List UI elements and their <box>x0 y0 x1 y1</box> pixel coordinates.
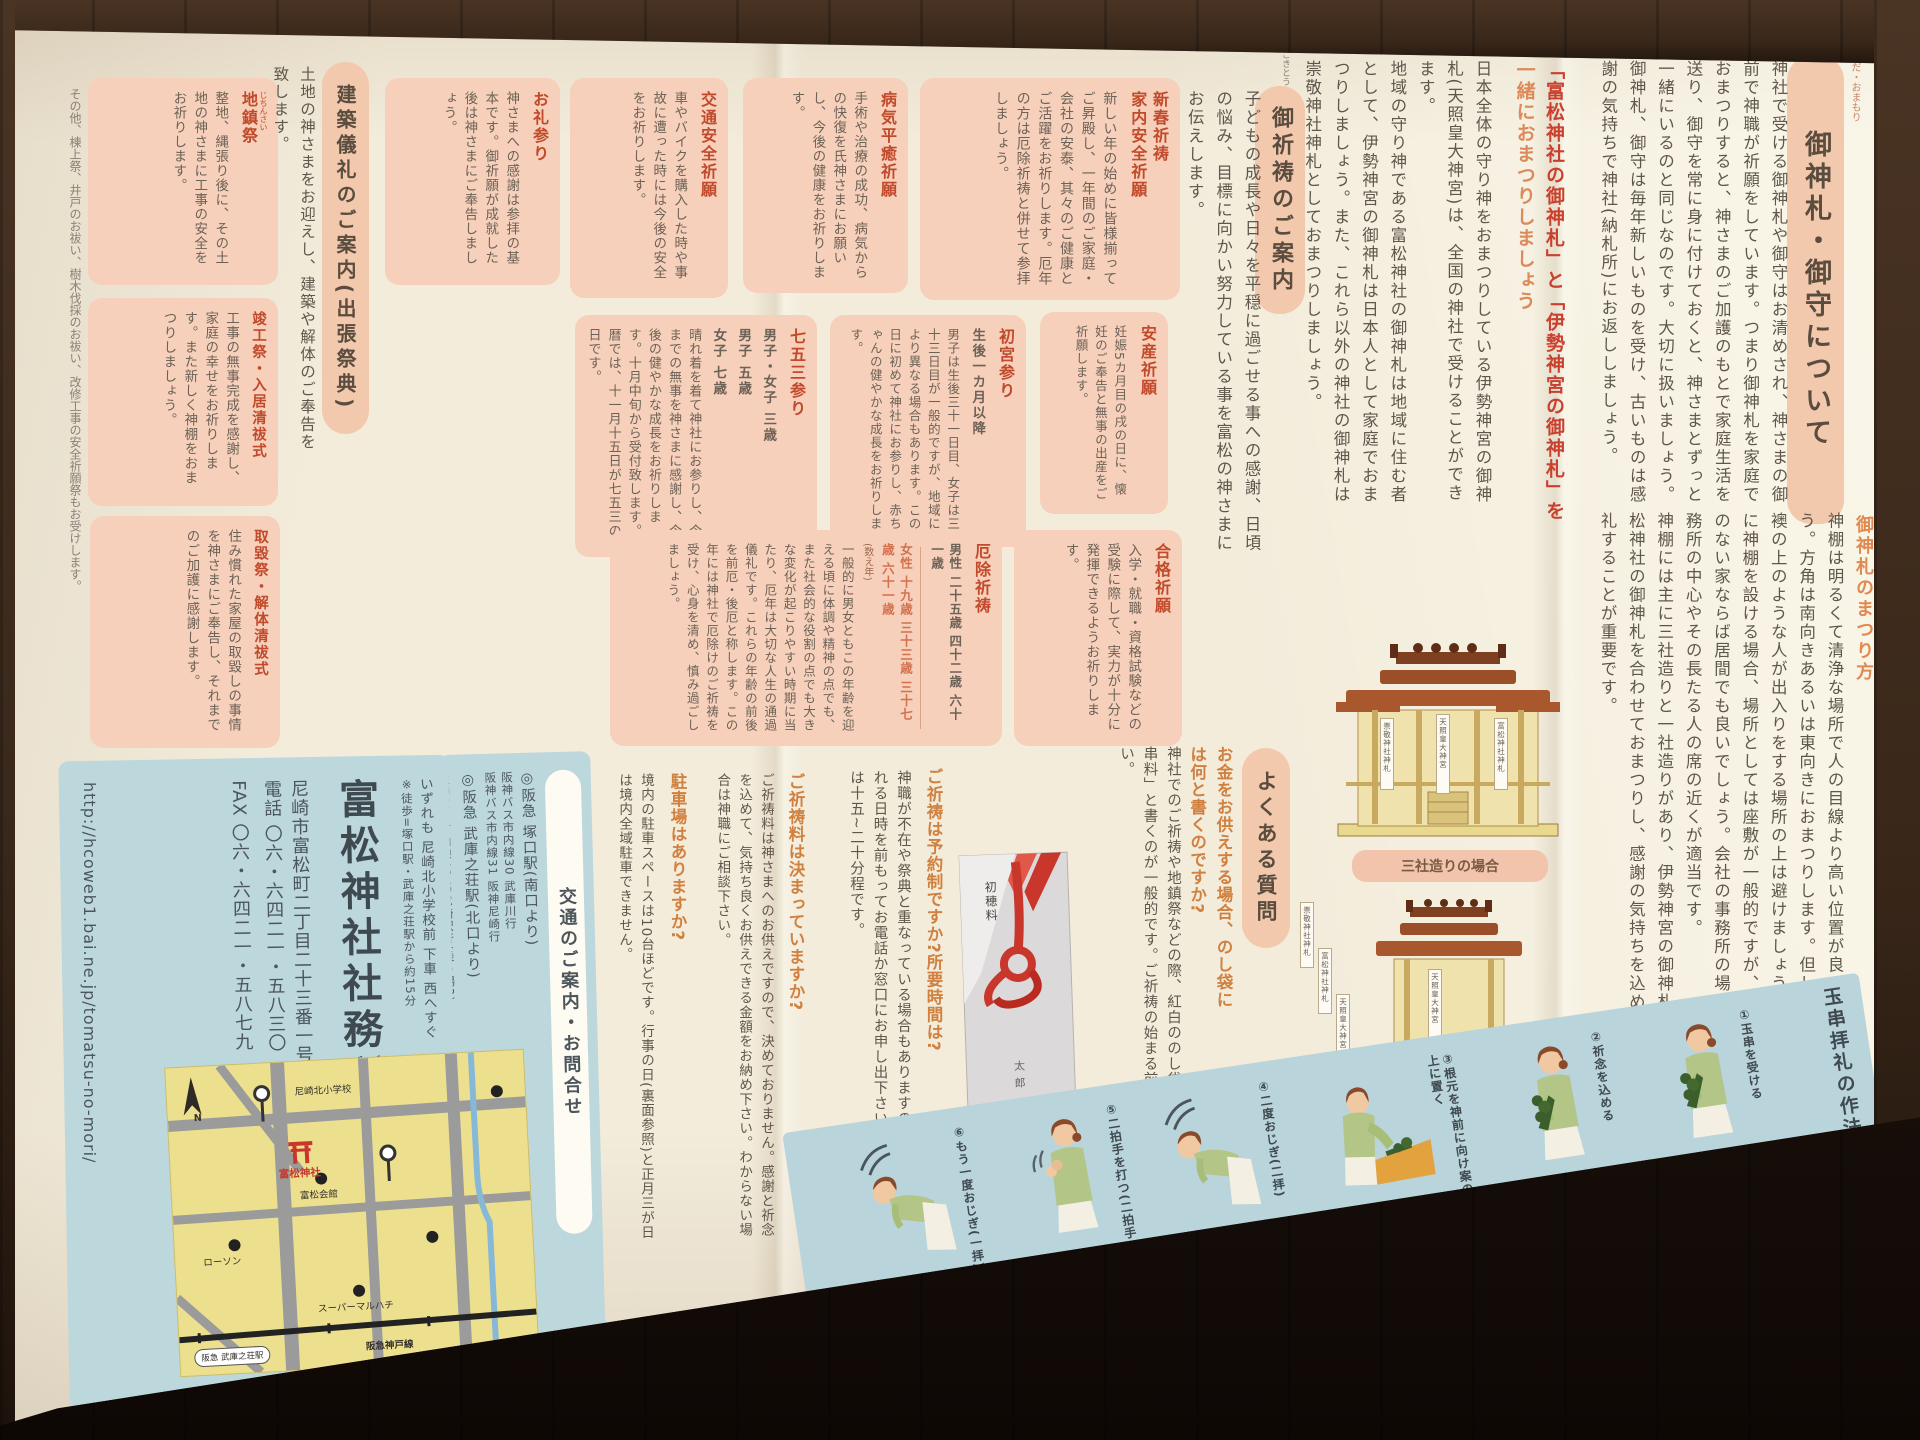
torikowashi-body: 住み慣れた家屋の取毀しの事情を神さまにご奉告し、それまでのご加護に感謝します。 <box>180 529 243 735</box>
shinshun-body: 新しい年の始めに皆様揃ってご昇殿し、一年間のご家庭・会社の安泰、其々のご健康とご… <box>989 91 1119 287</box>
map-art <box>165 1050 539 1376</box>
figure-hold-sprig-icon <box>1652 1009 1752 1148</box>
ofuda-p2: 御神札、御守は毎年新しいものを受け、古いものは感謝の気持ちで神社(納札所)にお返… <box>1593 60 1650 512</box>
matsuri-title: 御神札のまつり方 <box>1850 515 1876 763</box>
map-rail-label: 阪急神戸線 <box>366 1336 414 1352</box>
sanja-altar-illustration: 崇敬神社神札 天照皇大神宮 富松神社神札 <box>1332 632 1564 844</box>
shichigosan-body: 晴れ着を着て神社にお参りし、今までの無事を神さまに感謝し、今後の健やかな成長をお… <box>582 328 703 544</box>
shichigosan-age-1: 男子・女子 三歳 <box>758 328 778 544</box>
torii-icon <box>287 1139 314 1164</box>
shunko-body: 工事の無事完成を感謝し、家庭の幸せをお祈りします。また新しく神棚をおまつりしまし… <box>157 311 241 493</box>
shinshun-title-2: 家内安全祈願 <box>1126 91 1147 287</box>
ofuda-sub1a: 「富松神社の御神札」と「伊勢神宮の御神札」を <box>1539 60 1568 522</box>
kenchiku-side-note: その他、棟上祭、井戸のお祓い、樹木伐採のお祓い、改修工事の安全祈願祭もお受けしま… <box>65 88 84 628</box>
access-map: N 富松神社 ローソン 富松会館 尼崎北小学校 スーパーマルハチ 阪急神戸線 阪… <box>164 1049 540 1377</box>
box-yakuyoke: 厄除祈祷 男性 二十五歳 四十二歳 六十一歳 女性 十九歳 三十三歳 三十七歳 … <box>610 530 1002 746</box>
figure-bow-icon <box>853 1127 967 1268</box>
map-school-label: 尼崎北小学校 <box>294 1081 352 1098</box>
map-hall-label: 富松会館 <box>300 1186 339 1202</box>
box-jichinsai: じちんさい 地鎮祭 整地、縄張り後に、その土地の神さまに工事の安全をお祈りします… <box>88 78 278 285</box>
tamagushi-step-1: ①玉串を受ける <box>1652 1007 1773 1175</box>
figure-place-sprig-icon <box>1321 1056 1441 1198</box>
box-torikowashi: 取毀祭・解体清祓式 住み慣れた家屋の取毀しの事情を神さまにご奉告し、それまでのご… <box>90 516 280 748</box>
box-gokaku: 合格祈願 入学・就職・資格試験などの受験に際して、実力が十分に発揮できるようお祈… <box>1014 530 1182 746</box>
ofuda-red-subhead: 「富松神社の御神札」と「伊勢神宮の御神札」を 一緒におまつりしましょう <box>1509 60 1568 522</box>
tamagushi-step-4: ④二度おじぎ(二拝) <box>1158 1079 1293 1249</box>
ofuda-p4: 地域の守り神である富松神社の御神札は地域に住む者として、伊勢神宮の御神札は日本人… <box>1297 60 1411 512</box>
sanja-label: 三社造りの場合 <box>1352 850 1548 882</box>
hatsumiya-body: 男子は生後三十一日目、女子は三十三日目が一般的ですが、地域により異なる場合もあり… <box>846 328 962 534</box>
box-shichigosan: 七五三参り 男子・女子 三歳 男子 五歳 女子 七歳 晴れ着を着て神社にお参りし… <box>575 315 817 557</box>
shinshun-title-1: 新春祈祷 <box>1148 91 1169 287</box>
kotsu-body: 車やバイクを購入した時や事故に遭った時には今後の安全をお祈りします。 <box>626 91 689 285</box>
shichigosan-age-2: 男子 五歳 <box>733 328 753 544</box>
figure-clap-icon <box>1019 1104 1119 1243</box>
anzan-body: 妊娠5カ月目の戌の日に、懐妊のご奉告と無事の出産をご祈願します。 <box>1071 325 1129 501</box>
yakuyoke-note: (数え年) <box>860 543 875 733</box>
byoki-body: 手術や治療の成功、病気からの快復を氏神さまにお願いし、今後の健康をお祈りします。 <box>786 91 870 280</box>
faq-a4: 境内の駐車スペースは10台ほどです。行事の日(裏面参照)と正月三が日は境内全域駐… <box>612 773 656 1243</box>
ofuda-p1: 神社で受ける御神札や御守はお清めされ、神さまの御前で神職が祈願をしています。つま… <box>1650 60 1792 512</box>
ofuda-sub1b: 一緒におまつりしましょう <box>1509 60 1538 522</box>
faq-a3: ご祈祷料は神さまへのお供えですので、決めておりません。感謝と祈念を込めて、気持ち… <box>710 773 776 1243</box>
figure-bow-icon <box>1158 1081 1272 1222</box>
box-orei: お礼参り 神さまへの感謝は参拝の基本です。御祈願が成就した後は神さまにご奉告しま… <box>385 78 560 285</box>
orei-body: 神さまへの感謝は参拝の基本です。御祈願が成就した後は神さまにご奉告しましょう。 <box>438 91 522 272</box>
tamagushi-step-2: ②祈念を込める <box>1504 1029 1625 1197</box>
box-shinshun: 新春祈祷 家内安全祈願 新しい年の始めに皆様揃ってご昇殿し、一年間のご家庭・会社… <box>920 78 1180 300</box>
byoki-title: 病気平癒祈願 <box>876 91 897 280</box>
kotsu-title: 交通安全祈願 <box>696 91 717 285</box>
tamagushi-step-3: ③根元を神前に向け案の上に置く <box>1321 1051 1476 1224</box>
map-lawson-label: ローソン <box>203 1253 242 1269</box>
gokaku-body: 入学・就職・資格試験などの受験に際して、実力が十分に発揮できるようお祈りします。 <box>1060 543 1144 733</box>
box-anzan: 安産祈願 妊娠5カ月目の戌の日に、懐妊のご奉告と無事の出産をご祈願します。 <box>1040 312 1168 514</box>
ofuda-paragraphs-2: 日本全体の守り神をおまつりしている伊勢神宮の御神札(天照皇大神宮)は、全国の神社… <box>1293 60 1496 512</box>
faq-q1: お金をお供えする場合、のし袋には何と書くのですか? <box>1183 746 1236 1014</box>
tamagushi-title: 玉串拝礼の作法 <box>1817 985 1869 1155</box>
gokito-intro: 子どもの成長や日々を平穏に過ごせる事への感謝、日頃の悩み、目標に向かい努力してい… <box>1180 90 1265 568</box>
map-shrine-label: 富松神社 <box>278 1165 321 1182</box>
north-arrow-icon <box>176 1074 208 1118</box>
tamagushi-step-6: ⑥もう一度おじぎ(一拝) <box>853 1124 988 1294</box>
orei-title: お礼参り <box>528 91 549 272</box>
box-hatsumiya: 初宮参り 生後一カ月以降 男子は生後三十一日目、女子は三十三日目が一般的ですが、… <box>830 315 1026 547</box>
yakuyoke-title: 厄除祈祷 <box>970 543 991 733</box>
sanja-tag-center: 天照皇大神宮 <box>1436 714 1450 794</box>
shunko-title: 竣工祭・入居清祓式 <box>248 311 267 493</box>
figure-hold-sprig-icon <box>1504 1032 1604 1171</box>
photo-of-shrine-pamphlet: { "colors":{"accent_red":"#c24a2c","box_… <box>0 0 1920 1440</box>
table-wood-left <box>0 0 15 1440</box>
gokito-furigana: ごきとう <box>1279 50 1292 86</box>
access-title: 交通のご案内・お問合せ <box>545 769 593 1234</box>
jichinsai-body: 整地、縄張り後に、その土地の神さまに工事の安全をお祈りします。 <box>167 91 230 272</box>
faq-q3: ご祈祷料は決まっていますか? <box>782 773 808 1158</box>
sanja-tag-left: 崇敬神社神札 <box>1380 718 1394 790</box>
gokaku-title: 合格祈願 <box>1150 543 1171 733</box>
torikowashi-title: 取毀祭・解体清祓式 <box>250 529 269 735</box>
yakuyoke-female-ages: 女性 十九歳 三十三歳 三十七歳 六十一歳 <box>878 543 914 733</box>
sanja-tag-right: 富松神社神札 <box>1494 718 1508 790</box>
anzan-title: 安産祈願 <box>1136 325 1157 501</box>
issha-side-tag-1: 崇敬神社神札 <box>1300 902 1314 968</box>
table-wood-right <box>1874 0 1920 1440</box>
shichigosan-title: 七五三参り <box>785 328 806 544</box>
faq-q4: 駐車場はありますか? <box>664 773 690 1113</box>
box-shunko: 竣工祭・入居清祓式 工事の無事完成を感謝し、家庭の幸せをお祈りします。また新しく… <box>88 298 278 506</box>
office-url: http://hcoweb1.bai.ne.jp/tomatsu-no-mori… <box>80 782 99 1402</box>
hatsumiya-title: 初宮参り <box>994 328 1015 534</box>
ofuda-p6: 神棚には主に三社造りと一社造りがあり、伊勢神宮の御神札と富松神社の御神札を合わせ… <box>1593 512 1678 1060</box>
envelope-name: 太郎 <box>1010 1060 1027 1095</box>
hatsumiya-lead: 生後一カ月以降 <box>967 328 987 534</box>
yakuyoke-divider <box>920 547 921 729</box>
map-north-label: N <box>194 1113 203 1124</box>
faq-q2: ご祈祷は予約制ですか?所要時間は? <box>920 768 946 1158</box>
faq-title: よくある質問 <box>1242 748 1290 948</box>
box-kotsu: 交通安全祈願 車やバイクを購入した時や事故に遭った時には今後の安全をお祈りします… <box>570 78 728 298</box>
tamagushi-step-5: ⑤二拍手を打つ(二拍手) <box>1019 1102 1140 1270</box>
kenchiku-title: 建築儀礼のご案内(出張祭典) <box>322 62 369 434</box>
yakuyoke-male-ages: 男性 二十五歳 四十二歳 六十一歳 <box>927 543 963 733</box>
issha-side-tag-2: 富松神社神札 <box>1318 948 1332 1014</box>
matsuri-paragraphs: 神棚は明るくて清浄な場所で人の目線より高い位置が良いでしょう。方角は南向きあるい… <box>1589 512 1848 1060</box>
ofuda-paragraphs-1: 神社で受ける御神札や御守はお清めされ、神さまの御前で神職が祈願をしています。つま… <box>1589 60 1792 512</box>
jichinsai-title: 地鎮祭 <box>237 91 258 272</box>
yakuyoke-body: 一般的に男女ともこの年齢を迎える頃に体調や精神の点でも、また社会的な役割の点でも… <box>663 543 857 733</box>
kenchiku-intro: 土地の神さまをお迎えし、建築や解体のご奉告を致します。 <box>267 66 320 458</box>
shichigosan-age-3: 女子 七歳 <box>708 328 728 544</box>
ofuda-p3: 日本全体の守り神をおまつりしている伊勢神宮の御神札(天照皇大神宮)は、全国の神社… <box>1411 60 1496 512</box>
box-byoki: 病気平癒祈願 手術や治療の成功、病気からの快復を氏神さまにお願いし、今後の健康を… <box>743 78 908 293</box>
ofuda-title: 御神札・御守について <box>1787 56 1844 524</box>
envelope-label: 初穂料 <box>982 881 1000 924</box>
